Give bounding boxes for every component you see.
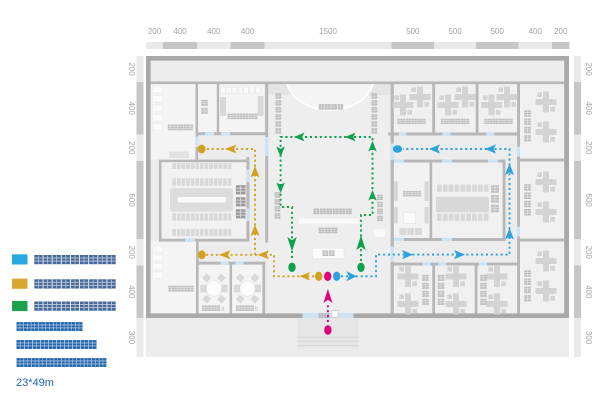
svg-text:300: 300 — [127, 331, 136, 345]
svg-text:600: 600 — [584, 193, 593, 207]
svg-text:500: 500 — [491, 27, 505, 36]
svg-text:200: 200 — [554, 27, 568, 36]
svg-text:23*49m: 23*49m — [16, 377, 54, 389]
svg-text:400: 400 — [127, 285, 136, 299]
svg-text:400: 400 — [584, 285, 593, 299]
svg-text:200: 200 — [127, 141, 136, 155]
svg-text:200: 200 — [584, 246, 593, 260]
svg-text:a: a — [221, 306, 225, 313]
svg-text:400: 400 — [173, 27, 187, 36]
svg-text:400: 400 — [127, 102, 136, 116]
svg-text:b: b — [255, 306, 259, 313]
svg-text:1500: 1500 — [319, 27, 337, 36]
svg-text:300: 300 — [584, 331, 593, 345]
svg-text:200: 200 — [584, 141, 593, 155]
svg-text:400: 400 — [584, 102, 593, 116]
svg-text:200: 200 — [148, 27, 162, 36]
svg-text:400: 400 — [207, 27, 221, 36]
svg-text:600: 600 — [127, 193, 136, 207]
svg-text:500: 500 — [406, 27, 420, 36]
svg-text:200: 200 — [127, 62, 136, 76]
svg-text:200: 200 — [584, 62, 593, 76]
svg-text:500: 500 — [448, 27, 462, 36]
svg-text:400: 400 — [241, 27, 255, 36]
svg-text:400: 400 — [529, 27, 543, 36]
svg-text:200: 200 — [127, 246, 136, 260]
